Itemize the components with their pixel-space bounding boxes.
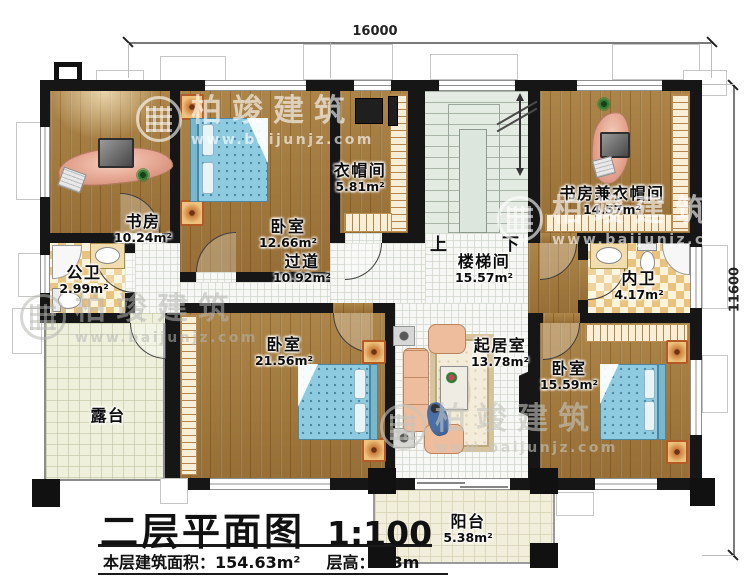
door-gap	[333, 303, 373, 313]
sink-icon	[95, 247, 120, 264]
window-sill	[303, 44, 393, 80]
room-area: 2.99m²	[36, 282, 132, 296]
room-label-study-cloakroom: 书房兼衣帽间 14.57m²	[537, 185, 687, 218]
stairs-down-label: 下	[502, 230, 519, 255]
window	[439, 80, 515, 91]
window	[690, 360, 702, 435]
room-name: 起居室	[452, 337, 548, 355]
plan-subtitle: 本层建筑面积：154.63m² 层高：3.3m	[103, 549, 419, 573]
room-name: 露台	[60, 407, 156, 425]
dimension-value-right: 11600	[728, 260, 743, 320]
flower-decor-icon	[446, 372, 460, 386]
window-sill	[12, 308, 42, 354]
sink-icon	[596, 247, 622, 264]
computer-monitor-icon	[600, 132, 630, 158]
room-name: 过道	[254, 253, 350, 271]
column-marker	[368, 468, 396, 494]
door-gap	[345, 233, 382, 243]
plant-icon	[596, 96, 612, 112]
dresser	[355, 98, 383, 124]
room-area: 4.17m²	[591, 288, 687, 302]
room-label-bedroom-left: 卧室 21.56m²	[236, 336, 332, 369]
window	[577, 80, 662, 91]
room-area: 5.81m²	[312, 180, 408, 194]
sliding-door-leaf	[460, 486, 508, 488]
extension-line	[702, 555, 734, 556]
door-gap	[130, 313, 165, 323]
floor-plan-canvas: 书房 10.24m² 卧室 12.66m² 衣帽间 5.81m² 书房兼衣帽间 …	[0, 0, 750, 582]
extension-line	[711, 43, 712, 78]
side-table	[393, 326, 415, 346]
bed-sheet-fold	[238, 118, 268, 202]
room-area: 10.92m²	[254, 271, 350, 285]
stair-landing	[459, 129, 487, 233]
room-name: 书房	[95, 213, 191, 231]
computer-monitor-icon	[98, 138, 134, 168]
floor-area-text: 本层建筑面积：154.63m²	[103, 549, 300, 573]
bed-sheet-fold	[298, 364, 328, 440]
pillow	[354, 403, 366, 433]
window-sill	[702, 355, 728, 413]
room-area: 5.38m²	[420, 531, 516, 545]
bed-headboard	[370, 364, 378, 440]
room-name: 阳台	[420, 513, 516, 531]
room-name: 卧室	[521, 360, 617, 378]
window-sill	[702, 245, 728, 309]
room-name: 楼梯间	[434, 253, 534, 271]
page-title: 二层平面图	[100, 501, 305, 556]
nightstand	[362, 340, 386, 364]
window-sill	[160, 56, 226, 82]
room-name: 卧室	[236, 336, 332, 354]
toilet-tank	[637, 243, 657, 251]
nightstand	[666, 440, 688, 464]
stair-direction-line	[519, 100, 521, 168]
floor-corridor	[135, 243, 180, 313]
arrow-down-icon	[516, 168, 524, 176]
room-area: 15.57m²	[434, 271, 534, 285]
door-gap	[543, 313, 580, 323]
room-label-bedroom-top: 卧室 12.66m²	[240, 218, 336, 251]
door-gap	[578, 260, 588, 300]
room-label-private-bath: 内卫 4.17m²	[591, 270, 687, 303]
arrow-up-icon	[516, 93, 524, 101]
window-sill	[430, 54, 518, 80]
window	[210, 478, 330, 490]
extension-line	[330, 43, 331, 78]
room-label-terrace: 露台	[60, 407, 156, 425]
room-label-study: 书房 10.24m²	[95, 213, 191, 246]
nightstand	[362, 438, 386, 462]
room-label-balcony: 阳台 5.38m²	[420, 513, 516, 546]
cabinet	[388, 96, 398, 126]
column-marker	[32, 479, 60, 507]
room-label-bedroom-right: 卧室 15.59m²	[521, 360, 617, 393]
column-marker	[690, 478, 715, 506]
column-marker	[530, 543, 558, 568]
room-name: 衣帽间	[312, 162, 408, 180]
room-label-public-bath: 公卫 2.99m²	[36, 264, 132, 297]
room-label-corridor: 过道 10.92m²	[254, 253, 350, 286]
room-name: 卧室	[240, 218, 336, 236]
room-name: 公卫	[36, 264, 132, 282]
plan-scale: 1:100	[327, 514, 432, 553]
balcony-sliding-door	[415, 478, 510, 490]
pillow	[354, 369, 366, 399]
room-label-cloakroom: 衣帽间 5.81m²	[312, 162, 408, 195]
nightstand	[666, 340, 688, 364]
extension-line	[702, 84, 734, 85]
plant-icon	[134, 166, 152, 184]
window	[40, 127, 50, 197]
window	[205, 80, 306, 91]
wardrobe	[344, 213, 392, 232]
window	[354, 80, 391, 91]
floor-height-text: 层高：3.3m	[326, 549, 419, 573]
pillow	[644, 369, 655, 399]
room-label-stairwell: 楼梯间 15.57m²	[434, 253, 534, 286]
sofa	[403, 348, 429, 432]
window-sill	[556, 492, 594, 516]
room-area: 10.24m²	[95, 231, 191, 245]
door-gap	[540, 233, 577, 243]
sliding-door-leaf	[417, 482, 465, 484]
pillow	[202, 162, 214, 194]
column-marker	[530, 468, 558, 494]
wardrobe	[181, 315, 197, 475]
extension-line	[128, 43, 129, 78]
room-area: 14.57m²	[537, 203, 687, 217]
room-name: 书房兼衣帽间	[537, 185, 687, 203]
pillow	[644, 401, 655, 431]
window	[690, 247, 702, 308]
window	[595, 478, 657, 490]
room-area: 12.66m²	[240, 236, 336, 250]
stairs-up-label: 上	[430, 230, 447, 255]
dimension-line-right	[733, 85, 735, 557]
room-area: 21.56m²	[236, 354, 332, 368]
bed-headboard	[190, 118, 198, 202]
subtitle-underline	[98, 573, 448, 575]
dimension-line-top	[128, 42, 713, 44]
bed-headboard	[658, 364, 666, 440]
nightstand	[180, 94, 204, 120]
door-gap	[196, 272, 236, 282]
room-area: 15.59m²	[521, 378, 617, 392]
title-block: 二层平面图 1:100	[100, 501, 432, 556]
dimension-value-top: 16000	[330, 24, 420, 39]
window-sill	[16, 122, 42, 200]
pillow	[202, 124, 214, 156]
room-name: 内卫	[591, 270, 687, 288]
